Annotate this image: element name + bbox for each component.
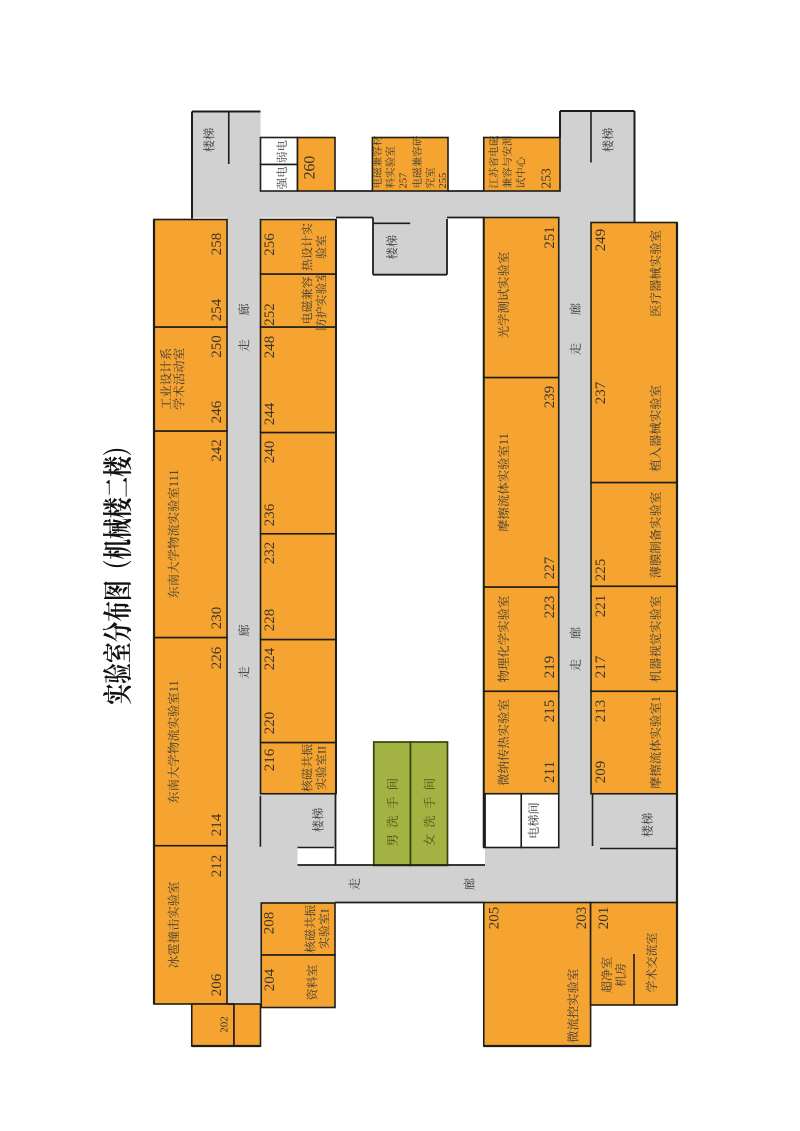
svg-text:廊: 廊 xyxy=(566,627,584,639)
svg-text:214: 214 xyxy=(209,813,225,836)
svg-text:实验室II: 实验室II xyxy=(313,746,330,790)
svg-text:209: 209 xyxy=(593,761,609,784)
svg-text:202: 202 xyxy=(219,1016,231,1033)
svg-text:廊: 廊 xyxy=(566,303,584,315)
svg-text:211: 211 xyxy=(542,761,558,783)
svg-text:楼梯: 楼梯 xyxy=(383,235,401,260)
svg-text:252: 252 xyxy=(262,303,278,326)
svg-text:光学测试实验室: 光学测试实验室 xyxy=(494,252,512,339)
svg-text:228: 228 xyxy=(262,609,278,632)
svg-text:走: 走 xyxy=(345,878,363,890)
svg-text:微流控实验室: 微流控实验室 xyxy=(564,969,582,1043)
svg-text:弱电: 弱电 xyxy=(274,140,290,163)
svg-text:251: 251 xyxy=(542,226,558,249)
svg-text:221: 221 xyxy=(593,595,609,618)
svg-text:254: 254 xyxy=(209,298,225,321)
svg-text:250: 250 xyxy=(209,335,225,358)
svg-text:225: 225 xyxy=(593,559,609,582)
svg-text:资料室: 资料室 xyxy=(304,964,321,1000)
svg-text:206: 206 xyxy=(209,973,225,996)
svg-text:廊: 廊 xyxy=(235,624,253,636)
svg-text:廊: 廊 xyxy=(235,303,253,315)
svg-text:楼梯: 楼梯 xyxy=(200,128,218,153)
svg-text:物理化学实验室: 物理化学实验室 xyxy=(494,596,512,683)
svg-text:男洗手间: 男洗手间 xyxy=(383,772,401,847)
svg-text:薄膜制备实验室: 薄膜制备实验室 xyxy=(646,492,664,579)
svg-text:256: 256 xyxy=(262,233,278,256)
svg-text:227: 227 xyxy=(542,556,558,579)
svg-text:验室: 验室 xyxy=(313,235,330,259)
svg-text:强电: 强电 xyxy=(274,166,290,189)
svg-text:216: 216 xyxy=(262,748,278,771)
svg-text:201: 201 xyxy=(596,907,612,930)
svg-text:学术交流室: 学术交流室 xyxy=(643,932,660,992)
svg-text:走: 走 xyxy=(566,659,584,671)
svg-text:240: 240 xyxy=(262,441,278,464)
svg-text:230: 230 xyxy=(209,607,225,630)
svg-text:255: 255 xyxy=(438,173,449,189)
svg-text:219: 219 xyxy=(542,656,558,679)
svg-text:248: 248 xyxy=(262,336,278,359)
svg-text:植入器械实验室: 植入器械实验室 xyxy=(646,385,664,472)
svg-text:246: 246 xyxy=(209,400,225,423)
svg-text:实验室I: 实验室I xyxy=(316,909,333,949)
svg-text:237: 237 xyxy=(593,381,609,404)
svg-text:究室: 究室 xyxy=(423,167,438,189)
svg-text:电梯间: 电梯间 xyxy=(525,802,542,839)
svg-text:机房: 机房 xyxy=(612,963,629,987)
svg-text:女洗手间: 女洗手间 xyxy=(420,772,438,847)
svg-text:试中心: 试中心 xyxy=(514,156,529,188)
svg-text:廊: 廊 xyxy=(460,878,478,890)
svg-text:257: 257 xyxy=(399,173,410,189)
svg-text:楼梯: 楼梯 xyxy=(638,813,656,838)
svg-text:215: 215 xyxy=(542,700,558,723)
svg-text:实验室分布图（机械楼二楼）: 实验室分布图（机械楼二楼） xyxy=(95,435,138,704)
svg-text:防护实验室: 防护实验室 xyxy=(313,270,330,330)
svg-text:学术活动室: 学术活动室 xyxy=(170,348,188,410)
svg-text:楼梯: 楼梯 xyxy=(599,128,617,153)
svg-text:走: 走 xyxy=(235,666,253,678)
svg-text:楼梯: 楼梯 xyxy=(309,808,327,833)
svg-text:微纳传热实验室: 微纳传热实验室 xyxy=(494,699,512,786)
svg-text:253: 253 xyxy=(539,168,554,189)
svg-text:东南大学物流实验室11: 东南大学物流实验室11 xyxy=(164,680,182,803)
svg-text:204: 204 xyxy=(262,968,278,991)
svg-text:249: 249 xyxy=(593,229,609,252)
svg-text:244: 244 xyxy=(262,402,278,425)
svg-text:205: 205 xyxy=(487,907,503,930)
svg-text:东南大学物流实验室111: 东南大学物流实验室111 xyxy=(164,469,182,598)
svg-text:232: 232 xyxy=(262,542,278,565)
svg-text:冰雹撞击实验室: 冰雹撞击实验室 xyxy=(164,881,182,968)
svg-text:224: 224 xyxy=(262,647,278,670)
svg-text:260: 260 xyxy=(302,156,319,180)
svg-text:203: 203 xyxy=(574,907,590,930)
svg-text:223: 223 xyxy=(542,596,558,619)
svg-text:220: 220 xyxy=(262,712,278,735)
svg-text:机器视觉实验室: 机器视觉实验室 xyxy=(646,596,664,683)
svg-text:258: 258 xyxy=(209,233,225,256)
svg-text:医疗器械实验室: 医疗器械实验室 xyxy=(646,230,664,317)
svg-text:212: 212 xyxy=(209,855,225,878)
svg-text:213: 213 xyxy=(593,700,609,723)
svg-text:料实验室: 料实验室 xyxy=(383,146,398,189)
svg-text:走: 走 xyxy=(235,339,253,351)
svg-text:208: 208 xyxy=(262,912,278,935)
svg-text:239: 239 xyxy=(542,386,558,409)
svg-text:226: 226 xyxy=(209,646,225,669)
svg-text:摩擦流体实验室1: 摩擦流体实验室1 xyxy=(646,696,664,789)
svg-text:242: 242 xyxy=(209,439,225,462)
svg-text:走: 走 xyxy=(566,343,584,355)
svg-text:217: 217 xyxy=(593,655,609,678)
svg-text:摩擦流体实验室11: 摩擦流体实验室11 xyxy=(494,433,512,532)
svg-text:236: 236 xyxy=(262,503,278,526)
